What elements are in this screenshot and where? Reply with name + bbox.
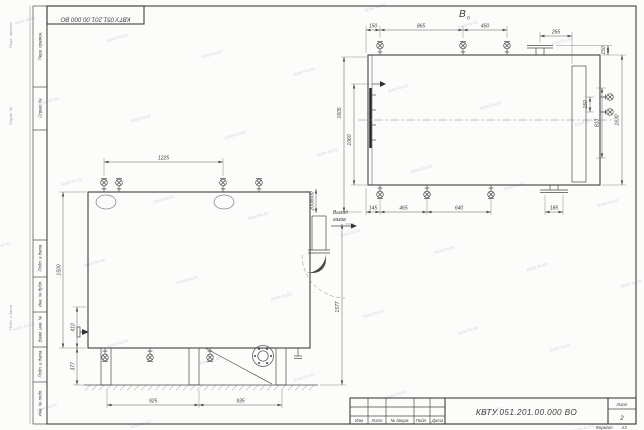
titleblock-code: КВТУ.051.201.00.000 ВО xyxy=(476,408,577,417)
margin-label: Взам. инв. № xyxy=(38,315,43,342)
format-value: А3 xyxy=(620,425,627,430)
dim-label: 150 xyxy=(583,100,589,109)
dim-label: 450 xyxy=(481,24,490,30)
dim-label: 935 xyxy=(236,399,245,405)
watermark-layer xyxy=(0,0,644,430)
drawing-canvas: kotel-kv.kz kotel-kv.kz Перв. примен. Сп… xyxy=(0,0,644,430)
titleblock-col: Подп. xyxy=(416,418,427,423)
margin-label: Инв. № подл. xyxy=(38,390,43,417)
margin-label: Инв. № дубл. xyxy=(38,281,43,307)
dim-label: 150 xyxy=(601,46,607,55)
view-label: В xyxy=(459,9,466,20)
margin-label: Подп. и дата xyxy=(38,244,43,272)
titleblock-col: Лист xyxy=(370,418,382,423)
dim-label: 1630 xyxy=(615,114,621,125)
dim-label: 1500 xyxy=(57,264,63,275)
outer-margin-label: Подп. и дата xyxy=(8,304,13,330)
dim-label: 377 xyxy=(71,362,77,371)
dim-label: 1225 xyxy=(158,156,169,162)
dim-label: 865 xyxy=(417,24,426,30)
dim-label: 640 xyxy=(455,206,464,212)
titleblock-col: № докум. xyxy=(391,418,410,423)
outer-margin-label: Перв. примен. xyxy=(8,21,13,48)
sheet-label: Лист xyxy=(615,402,627,407)
margin-label: Справ. № xyxy=(38,98,43,118)
margin-label: Перв. примен. xyxy=(38,32,43,61)
dim-label: 150 xyxy=(369,24,378,30)
gas-outlet-label: Выход xyxy=(333,210,348,216)
dim-label: 1577 xyxy=(335,301,341,312)
dim-label: 810 xyxy=(595,119,601,128)
gas-outlet-label: газов xyxy=(333,217,346,223)
stamp-code: КВТУ.051.201.00.000 ВО xyxy=(60,16,130,23)
outer-margin-label: Справ. № xyxy=(8,106,13,125)
dim-label: 465 xyxy=(399,206,408,212)
margin-label: Подп. и дата xyxy=(38,350,43,378)
format-label: Формат xyxy=(595,425,612,430)
view-label-sub: п xyxy=(467,16,470,22)
dim-label: 185 xyxy=(550,206,559,212)
drawing-sheet: kotel-kv.kz kotel-kv.kz Перв. примен. Сп… xyxy=(0,0,644,430)
dim-label: 145 xyxy=(369,206,378,212)
sheet-number: 2 xyxy=(619,415,624,422)
dim-label: 1605 xyxy=(337,107,343,118)
dim-label: 265 xyxy=(551,30,561,36)
dim-label: 925 xyxy=(149,399,158,405)
dim-label: 1060 xyxy=(347,134,353,145)
titleblock-col: Дата xyxy=(431,418,444,423)
dim-label: 200х600 xyxy=(310,191,316,211)
dim-label: 410 xyxy=(71,323,77,332)
titleblock-col: Изм xyxy=(355,418,363,423)
